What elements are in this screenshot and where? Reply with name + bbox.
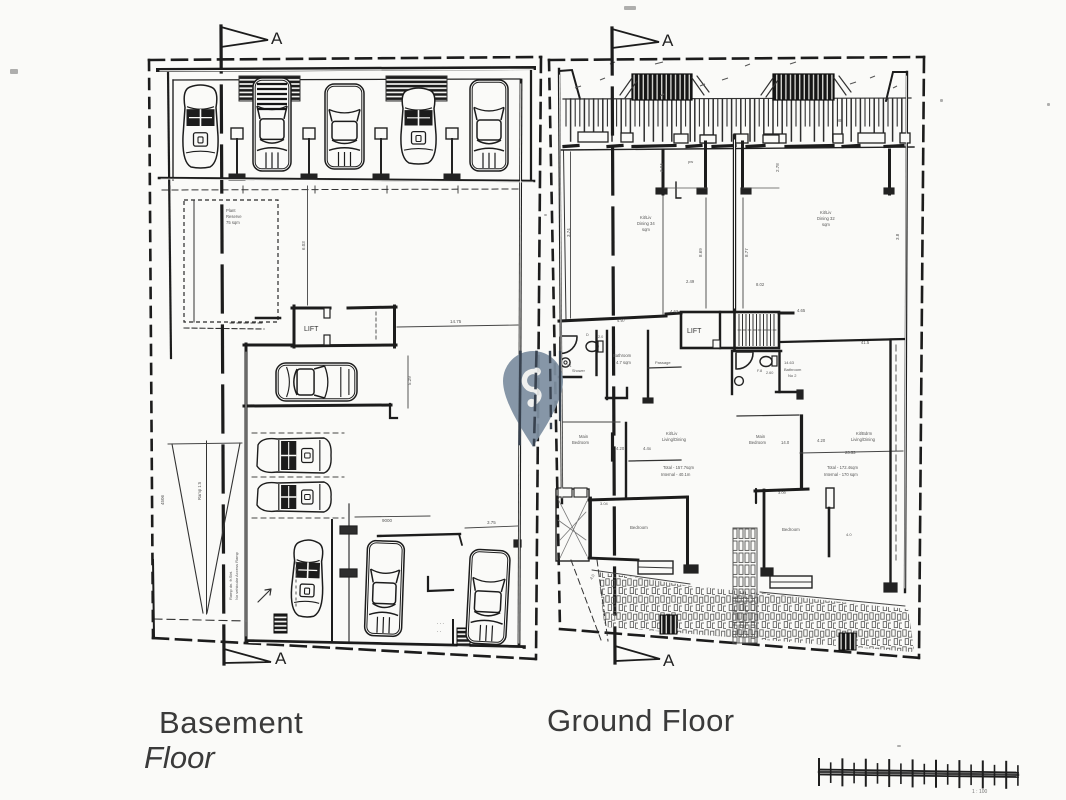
svg-text:Living/Dining: Living/Dining [662,437,687,442]
svg-text:D: D [586,333,589,337]
svg-text:Internal - 170 sqm: Internal - 170 sqm [824,472,858,477]
svg-text:F.8: F.8 [757,369,762,373]
svg-text:2.49: 2.49 [686,279,695,284]
svg-text:. .: . . [437,628,441,634]
svg-text:Ground Floor: Ground Floor [547,703,734,738]
svg-text:Ramp dn. fr.Strt.: Ramp dn. fr.Strt. [228,571,233,600]
svg-text:3.75: 3.75 [487,520,496,525]
svg-text:Bathroom: Bathroom [784,367,802,372]
svg-text:Bedroom: Bedroom [782,527,800,532]
svg-text:Shower: Shower [572,369,586,373]
svg-text:Reserve: Reserve [226,214,242,219]
svg-text:Total - 172.4sqm: Total - 172.4sqm [827,465,858,470]
svg-text:LIFT: LIFT [687,328,702,335]
svg-text:F1: F1 [567,364,571,368]
svg-text:sqm: sqm [822,222,830,227]
svg-text:4.0: 4.0 [589,573,596,581]
svg-text:8.02: 8.02 [756,282,765,287]
svg-text:Kit/Liv: Kit/Liv [666,431,678,436]
svg-text:14.0: 14.0 [781,440,790,445]
svg-text:5.29: 5.29 [407,376,412,385]
svg-text:Kit/Liv: Kit/Liv [820,210,832,215]
svg-text:Floor: Floor [144,740,216,775]
svg-text:4.20: 4.20 [616,446,625,451]
svg-text:Bedroom: Bedroom [572,440,590,445]
svg-text:Main: Main [756,434,766,439]
svg-text:1 : 100: 1 : 100 [972,789,988,795]
svg-text:Plant: Plant [226,208,236,213]
svg-text:A: A [271,29,283,48]
svg-text:Main: Main [579,434,589,439]
svg-text:sqm: sqm [642,227,650,232]
svg-text:Kit/Liv: Kit/Liv [640,215,652,220]
svg-text:LIFT: LIFT [304,326,319,333]
svg-text:3.04: 3.04 [600,501,609,506]
svg-text:Total - 157.7sqm: Total - 157.7sqm [663,465,694,470]
svg-text:Bedroom: Bedroom [630,525,648,530]
svg-text:4.97: 4.97 [617,318,626,323]
svg-text:4.65: 4.65 [797,308,806,313]
svg-text:Basement: Basement [159,705,303,740]
svg-text:14.75: 14.75 [450,319,462,324]
svg-text:Dining 34: Dining 34 [637,221,655,226]
svg-text:41.5: 41.5 [861,340,870,345]
svg-text:2.0: 2.0 [598,335,603,339]
svg-text:A: A [662,31,674,50]
svg-text:75 sqm: 75 sqm [226,220,240,225]
svg-text:Living/Dining: Living/Dining [851,437,876,442]
svg-text:A: A [663,651,675,670]
svg-text:Kit/Bdrm: Kit/Bdrm [856,431,873,436]
svg-text:2.78: 2.78 [775,163,780,172]
svg-text:Bathroom: Bathroom [613,353,632,358]
svg-text:8.77: 8.77 [744,248,749,257]
svg-text:4.20: 4.20 [817,438,826,443]
svg-text:2.60: 2.60 [766,371,773,375]
svg-text:. . .: . . . [437,620,444,626]
svg-text:Passage: Passage [655,360,671,365]
svg-text:No vehicular Access Ramp: No vehicular Access Ramp [234,551,239,600]
svg-text:2.94: 2.94 [659,163,664,172]
svg-text:4.7 sqm: 4.7 sqm [616,360,631,365]
svg-text:9000: 9000 [382,518,393,523]
svg-text:A: A [275,649,287,668]
svg-text:Bedroom: Bedroom [749,440,767,445]
svg-text:pw: pw [688,159,693,164]
svg-text:6.03: 6.03 [301,241,306,250]
svg-text:14.63: 14.63 [784,360,795,365]
svg-text:Dining 32: Dining 32 [817,216,835,221]
svg-text:Internal - 40.1m: Internal - 40.1m [661,472,691,477]
svg-text:4.62: 4.62 [670,309,679,314]
svg-text:Ramp 1:5: Ramp 1:5 [197,481,202,500]
svg-text:4506: 4506 [160,494,165,505]
svg-text:3.09: 3.09 [778,490,787,495]
svg-text:3.8: 3.8 [895,233,900,240]
svg-text:4.4x: 4.4x [643,446,652,451]
svg-text:4.0: 4.0 [846,532,852,537]
svg-text:No 2: No 2 [788,373,797,378]
svg-text:8.69: 8.69 [698,248,703,257]
